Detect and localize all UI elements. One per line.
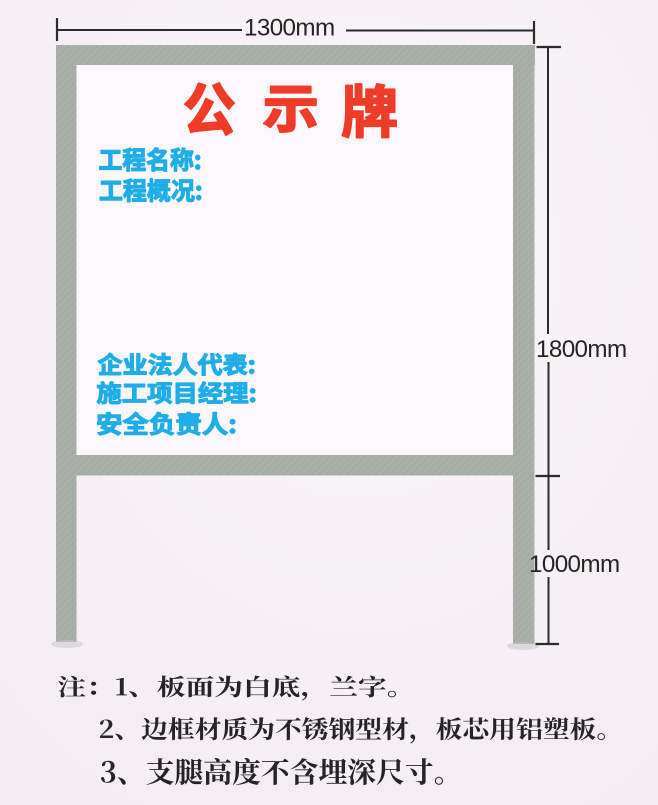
svg-text:1300mm: 1300mm	[244, 15, 335, 42]
svg-text:1000mm: 1000mm	[529, 551, 620, 578]
svg-text:1800mm: 1800mm	[536, 336, 627, 363]
